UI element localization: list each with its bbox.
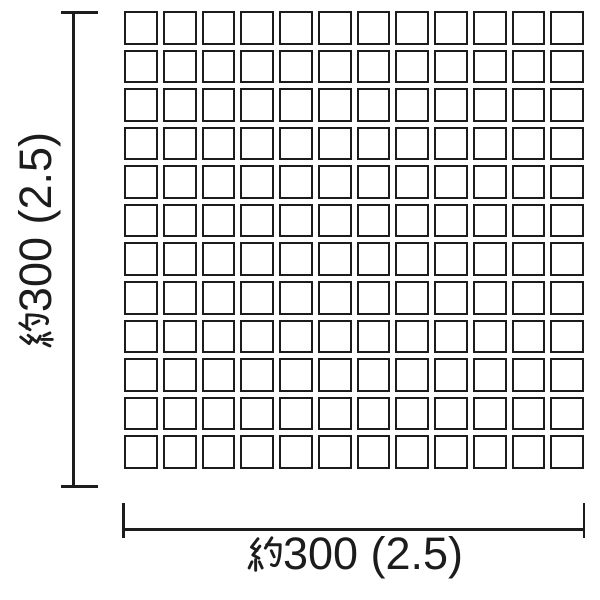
tile-cell bbox=[434, 88, 468, 122]
tile-cell bbox=[124, 127, 158, 161]
tile-cell bbox=[240, 11, 274, 45]
tile-cell bbox=[512, 397, 546, 431]
tile-cell bbox=[163, 165, 197, 199]
tile-cell bbox=[318, 165, 352, 199]
tile-cell bbox=[550, 88, 584, 122]
tile-cell bbox=[124, 281, 158, 315]
tile-cell bbox=[318, 50, 352, 84]
tile-cell bbox=[512, 435, 546, 469]
tile-cell bbox=[240, 397, 274, 431]
tile-cell bbox=[318, 242, 352, 276]
tile-cell bbox=[550, 242, 584, 276]
tile-cell bbox=[318, 281, 352, 315]
vertical-dimension-value: 300 (2.5) bbox=[10, 132, 61, 312]
tile-cell bbox=[163, 397, 197, 431]
tile-cell bbox=[473, 127, 507, 161]
tile-cell bbox=[434, 50, 468, 84]
vertical-dimension-label: 300 (2.5) bbox=[11, 132, 61, 350]
tile-cell bbox=[512, 165, 546, 199]
tile-cell bbox=[395, 11, 429, 45]
tile-cell bbox=[473, 320, 507, 354]
tile-cell bbox=[202, 165, 236, 199]
tile-cell bbox=[357, 127, 391, 161]
tile-cell bbox=[124, 88, 158, 122]
vertical-dimension-bottom-tick bbox=[61, 485, 98, 488]
tile-cell bbox=[434, 281, 468, 315]
tile-cell bbox=[357, 320, 391, 354]
tile-cell bbox=[473, 435, 507, 469]
tile-cell bbox=[512, 320, 546, 354]
tile-cell bbox=[124, 11, 158, 45]
tile-cell bbox=[124, 397, 158, 431]
kanji-yaku-approx-glyph bbox=[18, 313, 55, 350]
tile-cell bbox=[395, 358, 429, 392]
tile-cell bbox=[163, 358, 197, 392]
tile-cell bbox=[357, 281, 391, 315]
tile-cell bbox=[473, 242, 507, 276]
tile-cell bbox=[124, 242, 158, 276]
tile-cell bbox=[279, 204, 313, 238]
tile-cell bbox=[512, 11, 546, 45]
tile-cell bbox=[163, 281, 197, 315]
tile-cell bbox=[202, 88, 236, 122]
tile-cell bbox=[357, 11, 391, 45]
vertical-dimension-line bbox=[72, 11, 75, 487]
tile-cell bbox=[202, 435, 236, 469]
tile-cell bbox=[279, 165, 313, 199]
tile-cell bbox=[279, 11, 313, 45]
tile-cell bbox=[395, 50, 429, 84]
tile-cell bbox=[163, 11, 197, 45]
tile-cell bbox=[473, 204, 507, 238]
tile-cell bbox=[240, 320, 274, 354]
tile-cell bbox=[240, 435, 274, 469]
tile-cell bbox=[357, 242, 391, 276]
tile-cell bbox=[202, 358, 236, 392]
tile-cell bbox=[550, 165, 584, 199]
tile-cell bbox=[512, 50, 546, 84]
tile-cell bbox=[395, 242, 429, 276]
tile-cell bbox=[512, 127, 546, 161]
tile-cell bbox=[202, 242, 236, 276]
tile-sheet-dimension-diagram: 300 (2.5) 300 (2.5) bbox=[0, 0, 600, 600]
horizontal-dimension-value: 300 (2.5) bbox=[283, 528, 463, 579]
tile-cell bbox=[357, 435, 391, 469]
tile-cell bbox=[318, 88, 352, 122]
vertical-dimension-top-tick bbox=[61, 11, 98, 14]
tile-cell bbox=[240, 50, 274, 84]
tile-cell bbox=[395, 88, 429, 122]
tile-cell bbox=[279, 435, 313, 469]
tile-cell bbox=[279, 50, 313, 84]
tile-cell bbox=[202, 397, 236, 431]
tile-cell bbox=[240, 127, 274, 161]
tile-cell bbox=[550, 204, 584, 238]
tile-cell bbox=[202, 50, 236, 84]
tile-cell bbox=[202, 11, 236, 45]
tile-cell bbox=[318, 320, 352, 354]
tile-cell bbox=[318, 127, 352, 161]
tile-cell bbox=[279, 88, 313, 122]
tile-cell bbox=[163, 50, 197, 84]
tile-cell bbox=[240, 165, 274, 199]
tile-cell bbox=[434, 11, 468, 45]
tile-cell bbox=[163, 242, 197, 276]
tile-cell bbox=[434, 127, 468, 161]
tile-cell bbox=[512, 88, 546, 122]
tile-cell bbox=[163, 127, 197, 161]
tile-cell bbox=[318, 204, 352, 238]
tile-cell bbox=[357, 397, 391, 431]
tile-cell bbox=[550, 358, 584, 392]
tile-cell bbox=[124, 435, 158, 469]
tile-cell bbox=[318, 358, 352, 392]
tile-cell bbox=[124, 358, 158, 392]
tile-cell bbox=[434, 165, 468, 199]
tile-cell bbox=[512, 358, 546, 392]
tile-cell bbox=[240, 204, 274, 238]
tile-cell bbox=[279, 358, 313, 392]
tile-cell bbox=[473, 88, 507, 122]
tile-cell bbox=[512, 242, 546, 276]
kanji-yaku-approx-glyph bbox=[245, 536, 282, 573]
tile-cell bbox=[124, 204, 158, 238]
tile-cell bbox=[550, 11, 584, 45]
tile-cell bbox=[473, 358, 507, 392]
tile-cell bbox=[124, 50, 158, 84]
tile-cell bbox=[163, 88, 197, 122]
tile-cell bbox=[395, 204, 429, 238]
tile-cell bbox=[550, 435, 584, 469]
tile-cell bbox=[240, 242, 274, 276]
tile-cell bbox=[550, 320, 584, 354]
tile-cell bbox=[395, 320, 429, 354]
tile-cell bbox=[163, 204, 197, 238]
tile-cell bbox=[279, 127, 313, 161]
tile-cell bbox=[357, 50, 391, 84]
tile-cell bbox=[434, 320, 468, 354]
tile-cell bbox=[512, 204, 546, 238]
tile-cell bbox=[357, 88, 391, 122]
tile-cell bbox=[473, 281, 507, 315]
tile-cell bbox=[434, 204, 468, 238]
tile-cell bbox=[163, 435, 197, 469]
tile-cell bbox=[550, 397, 584, 431]
tile-cell bbox=[279, 242, 313, 276]
tile-cell bbox=[473, 397, 507, 431]
tile-cell bbox=[395, 127, 429, 161]
tile-cell bbox=[318, 11, 352, 45]
tile-cell bbox=[395, 397, 429, 431]
tile-cell bbox=[473, 50, 507, 84]
tile-cell bbox=[202, 204, 236, 238]
tile-cell bbox=[357, 358, 391, 392]
tile-cell bbox=[550, 127, 584, 161]
tile-cell bbox=[279, 397, 313, 431]
tile-cell bbox=[473, 165, 507, 199]
tile-cell bbox=[434, 397, 468, 431]
tile-cell bbox=[395, 281, 429, 315]
tile-cell bbox=[318, 435, 352, 469]
tile-cell bbox=[240, 281, 274, 315]
tile-cell bbox=[124, 320, 158, 354]
tile-cell bbox=[395, 435, 429, 469]
tile-cell bbox=[202, 281, 236, 315]
tile-cell bbox=[550, 50, 584, 84]
tile-cell bbox=[434, 358, 468, 392]
horizontal-dimension-label: 300 (2.5) bbox=[124, 529, 584, 579]
tile-cell bbox=[163, 320, 197, 354]
tile-cell bbox=[240, 88, 274, 122]
tile-cell bbox=[395, 165, 429, 199]
tile-cell bbox=[202, 320, 236, 354]
tile-cell bbox=[202, 127, 236, 161]
tile-cell bbox=[357, 165, 391, 199]
tile-cell bbox=[473, 11, 507, 45]
tile-cell bbox=[434, 435, 468, 469]
tile-cell bbox=[279, 320, 313, 354]
tile-cell bbox=[512, 281, 546, 315]
tile-cell bbox=[357, 204, 391, 238]
tile-grid bbox=[124, 11, 584, 469]
tile-cell bbox=[124, 165, 158, 199]
tile-cell bbox=[279, 281, 313, 315]
tile-cell bbox=[318, 397, 352, 431]
tile-cell bbox=[550, 281, 584, 315]
tile-cell bbox=[240, 358, 274, 392]
tile-cell bbox=[434, 242, 468, 276]
